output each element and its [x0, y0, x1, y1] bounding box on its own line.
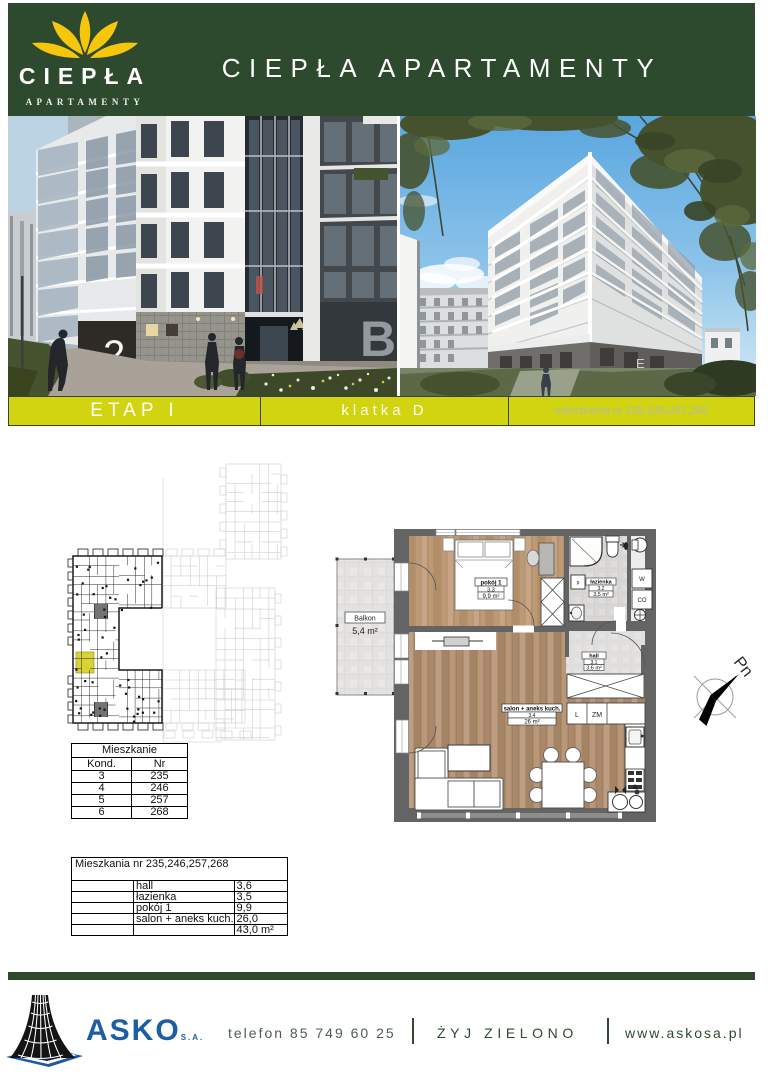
svg-text:Pn: Pn — [730, 653, 757, 680]
svg-text:L: L — [575, 712, 579, 719]
svg-text:salon + aneks kuch.: salon + aneks kuch. — [504, 707, 561, 713]
svg-text:ZM: ZM — [592, 712, 602, 719]
svg-text:hall: hall — [589, 654, 599, 660]
svg-text:Balkon: Balkon — [354, 616, 376, 623]
svg-text:CO: CO — [638, 598, 647, 604]
svg-text:B: B — [360, 311, 396, 367]
svg-text:5,4 m²: 5,4 m² — [352, 626, 378, 636]
svg-text:3,6 m²: 3,6 m² — [586, 666, 602, 672]
svg-text:p: p — [577, 580, 580, 586]
svg-text:9,9 m²: 9,9 m² — [482, 594, 499, 600]
svg-text:łazienka: łazienka — [590, 580, 612, 586]
svg-text:pokój 1: pokój 1 — [480, 581, 502, 587]
svg-text:W: W — [639, 577, 645, 583]
svg-text:3,5 m²: 3,5 m² — [593, 592, 609, 598]
svg-text:26 m²: 26 m² — [524, 720, 539, 726]
